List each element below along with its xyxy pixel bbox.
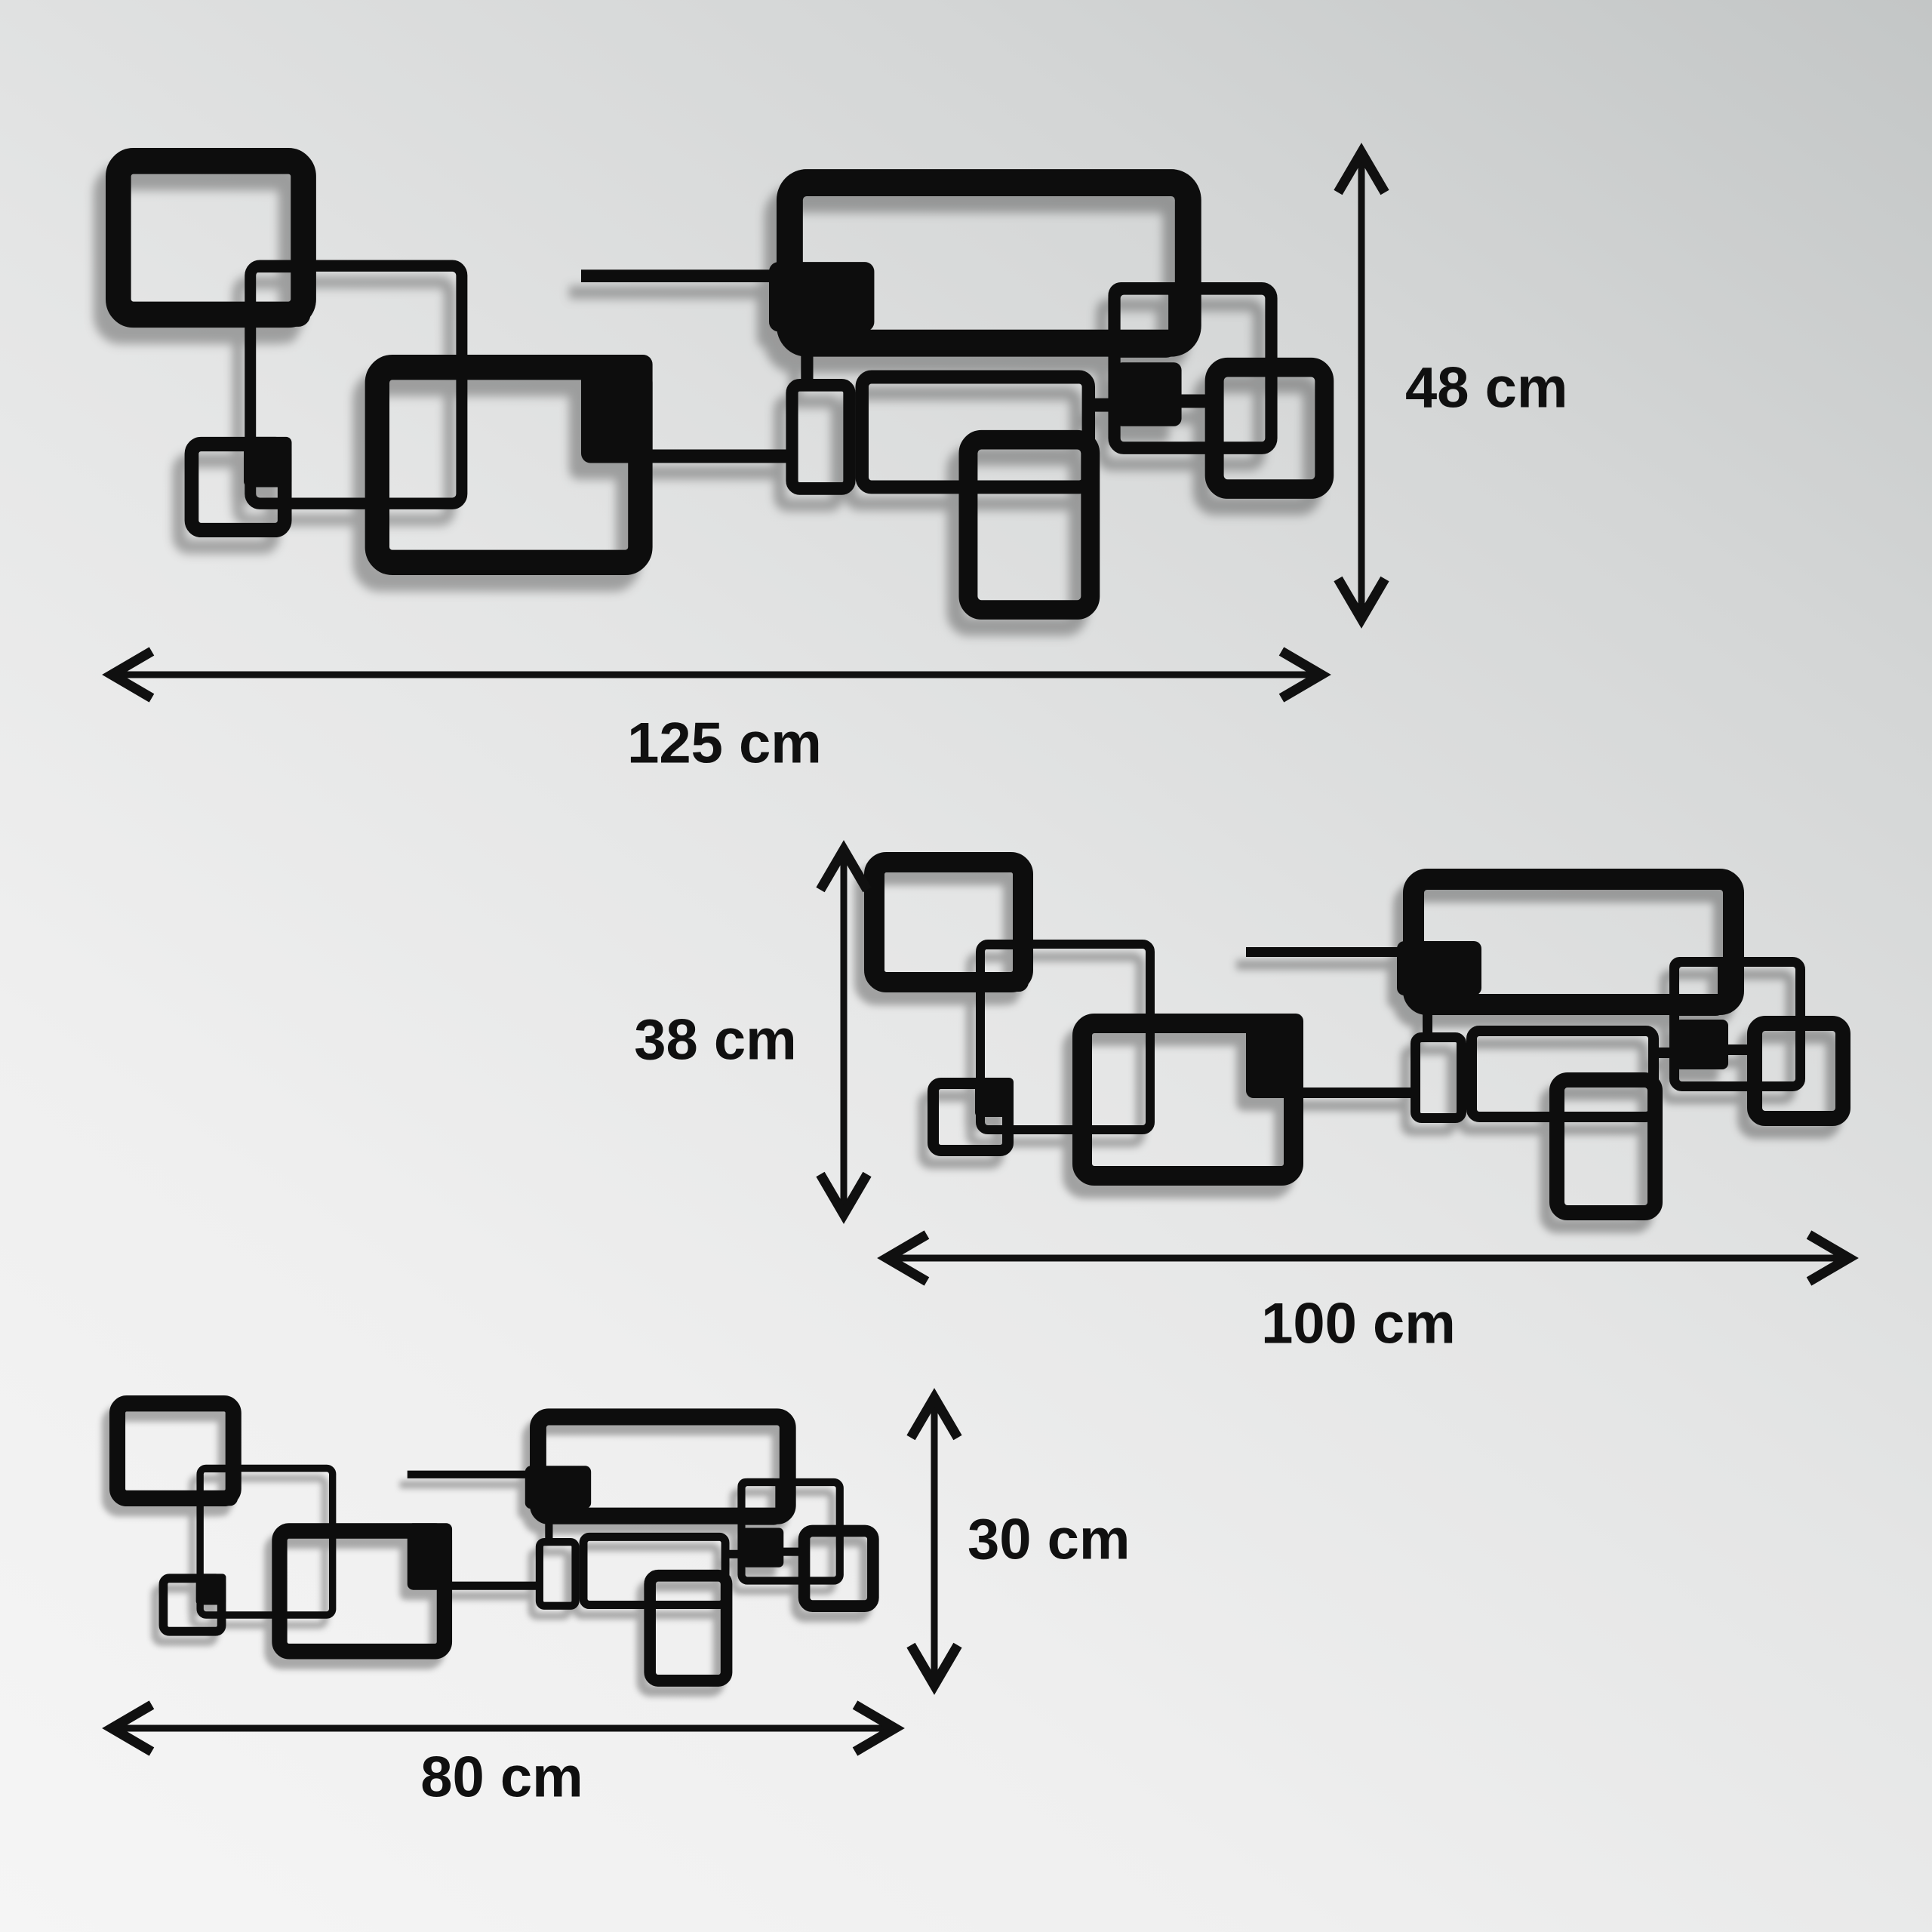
height-label-small: 30 cm [968, 1507, 1131, 1573]
height-arrow-large [1338, 152, 1385, 619]
height-arrow-small [911, 1398, 958, 1685]
width-label-large: 125 cm [627, 711, 822, 777]
height-label-medium: 38 cm [634, 1008, 797, 1073]
height-label-large: 48 cm [1405, 355, 1568, 421]
height-arrow-medium [820, 850, 867, 1214]
width-arrow-large [112, 651, 1321, 698]
size-diagram-canvas: 48 cm 125 cm 38 cm 100 cm 30 cm 80 cm [0, 0, 1932, 1932]
width-arrow-medium [887, 1235, 1849, 1281]
width-label-medium: 100 cm [1261, 1291, 1456, 1357]
width-label-small: 80 cm [420, 1745, 583, 1810]
dimension-arrows [0, 0, 1932, 1932]
